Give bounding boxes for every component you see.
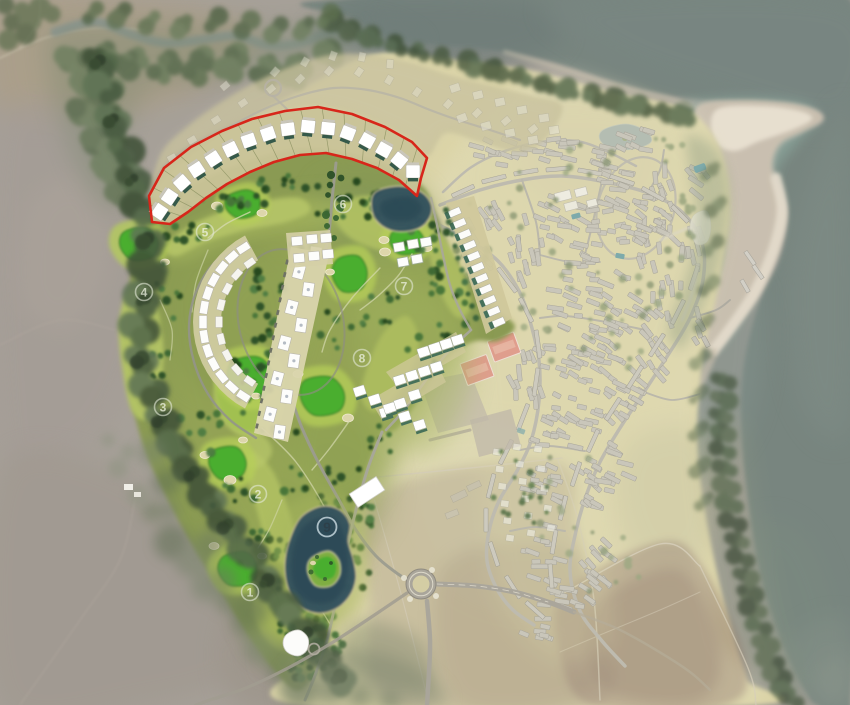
svg-text:6: 6 [340, 198, 347, 212]
svg-text:8: 8 [359, 352, 366, 366]
svg-text:5: 5 [202, 226, 209, 240]
svg-text:7: 7 [401, 280, 408, 294]
svg-text:1: 1 [247, 586, 254, 600]
svg-text:3: 3 [160, 401, 167, 415]
svg-text:2: 2 [255, 488, 262, 502]
svg-text:4: 4 [141, 286, 148, 300]
svg-text:9: 9 [323, 519, 331, 535]
